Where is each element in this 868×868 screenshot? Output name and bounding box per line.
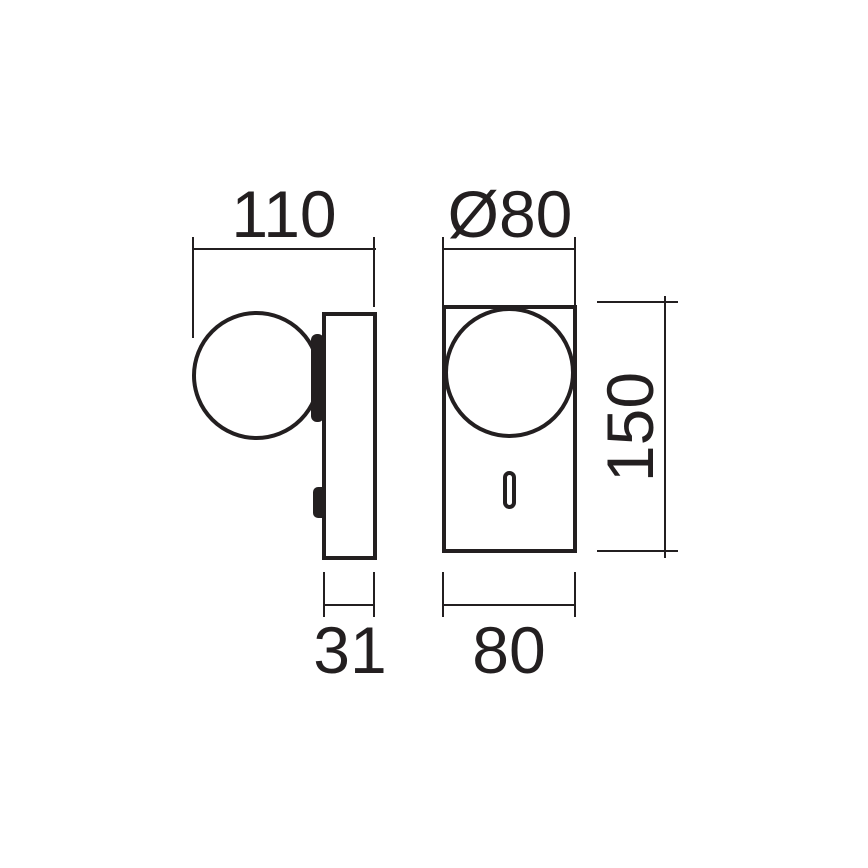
dim-d80-extension-right — [574, 237, 576, 305]
dim-31-extension-left — [323, 572, 325, 617]
dim-150-label: 150 — [597, 372, 663, 482]
dim-31-line — [323, 604, 375, 606]
dim-d80-extension-left — [442, 237, 444, 305]
dim-31-label: 31 — [313, 617, 386, 683]
dim-110-extension-left — [192, 237, 194, 338]
dim-80-extension-right — [574, 572, 576, 617]
dim-80-line — [442, 604, 576, 606]
switch-slot-front — [503, 471, 516, 509]
dim-110-label: 110 — [231, 181, 336, 247]
drawing-canvas: 110 Ø80 150 31 80 — [0, 0, 868, 868]
dim-31-extension-right — [373, 572, 375, 617]
mounting-plate-side — [322, 312, 377, 560]
dim-d80-label: Ø80 — [448, 181, 573, 247]
globe-circle-front — [444, 307, 575, 438]
dim-110-extension-right — [373, 237, 375, 307]
switch-knob-side — [313, 487, 324, 518]
globe-circle-side — [192, 311, 321, 440]
dim-80-label: 80 — [472, 617, 545, 683]
dim-80-extension-left — [442, 572, 444, 617]
